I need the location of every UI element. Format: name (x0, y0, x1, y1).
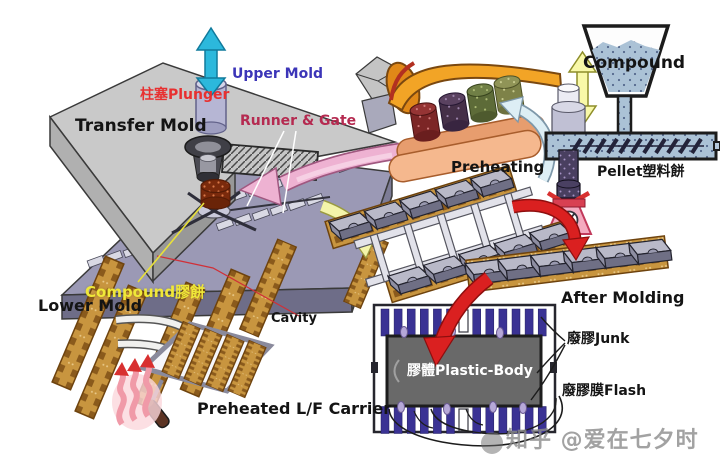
label-transfer-mold: Transfer Mold (75, 117, 207, 136)
molding-process-diagram: Transfer Mold Upper Mold 柱塞Plunger Runne… (0, 0, 720, 473)
label-plunger: 柱塞Plunger (140, 88, 229, 103)
label-after-molding: After Molding (561, 289, 684, 307)
label-upper-mold: Upper Mold (232, 67, 323, 82)
label-junk: 廢膠Junk (567, 332, 629, 347)
label-plastic-body: 膠體Plastic-Body (400, 364, 540, 379)
label-flash: 廢膠膜Flash (562, 384, 646, 399)
watermark: 知乎 @爱在七夕时 (506, 429, 699, 453)
label-runner-gate: Runner & Gate (240, 114, 356, 129)
compound-pellet (201, 180, 230, 210)
watermark-logo (481, 432, 503, 454)
compound-hopper (584, 26, 668, 135)
label-preheated-carrier: Preheated L/F Carrier (197, 400, 391, 418)
extruded-pellet (557, 150, 580, 198)
label-cavity: Cavity (271, 312, 317, 326)
label-preheating: Preheating (451, 159, 544, 176)
label-pellet: Pellet塑料餅 (597, 165, 685, 180)
label-compound: Compound (583, 54, 685, 73)
label-lower-mold: Lower Mold (38, 297, 142, 315)
